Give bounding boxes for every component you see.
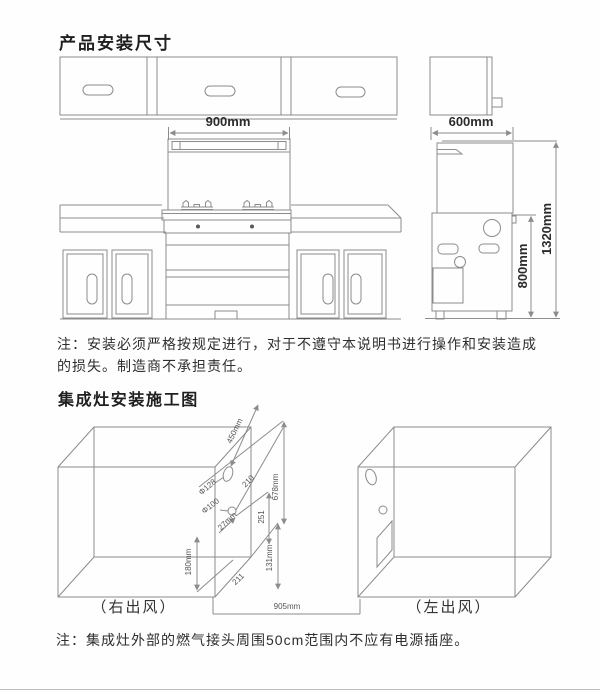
cabinet-handle bbox=[492, 98, 502, 107]
control-knob bbox=[250, 225, 254, 229]
cabinet-handle bbox=[87, 274, 97, 304]
construction-dimension-lines bbox=[197, 405, 360, 614]
opening-width-label: 905mm bbox=[274, 602, 301, 611]
gas-hole bbox=[379, 506, 387, 514]
cabinet-handle bbox=[83, 85, 113, 95]
page-bottom-divider bbox=[0, 689, 600, 690]
gas-burner bbox=[181, 201, 213, 210]
cabinet-handle bbox=[205, 86, 235, 96]
cabinet-handle bbox=[351, 274, 361, 304]
cabinet-handle bbox=[323, 274, 333, 304]
cabinet-depth-label: 600mm bbox=[449, 114, 494, 129]
right-outlet-caption: （右出风） bbox=[91, 599, 176, 616]
dimension-labels: 900mm 600mm 1320mm 800mm bbox=[206, 114, 554, 288]
leg bbox=[436, 311, 444, 319]
control-knob bbox=[196, 225, 200, 229]
outlet-cutout bbox=[377, 521, 392, 567]
note-socket: 注：集成灶外部的燃气接头周围50cm范围内不应有电源插座。 bbox=[56, 629, 576, 651]
dim-211-label: 211 bbox=[231, 571, 247, 587]
product-dimensions-drawing: 900mm 600mm 1320mm 800mm bbox=[0, 50, 600, 325]
gas-dia-label: Φ100 bbox=[200, 496, 222, 516]
dim-131-label: 131mm bbox=[265, 544, 274, 571]
fan-outlet bbox=[484, 220, 501, 237]
counter-height-label: 800mm bbox=[515, 244, 530, 289]
dim-180-label: 180mm bbox=[184, 548, 193, 575]
gas-burner bbox=[242, 201, 274, 210]
construction-labels: 450mm Φ128 210 678mm Φ100 27mm 251 180mm… bbox=[91, 417, 491, 616]
right-outlet-box bbox=[58, 427, 251, 597]
panel-height-label: 678mm bbox=[271, 473, 280, 500]
stove-width-label: 900mm bbox=[206, 114, 251, 129]
left-outlet-box bbox=[358, 427, 551, 597]
kitchen-side-view bbox=[430, 57, 516, 319]
dim-210-label: 210 bbox=[240, 473, 256, 489]
note-installation: 注：安装必须严格按规定进行，对于不遵守本说明书进行操作和安装造成的损失。制造商不… bbox=[57, 333, 545, 377]
left-outlet-caption: （左出风） bbox=[406, 599, 491, 616]
cabinet-handle bbox=[122, 274, 132, 304]
construction-diagram: 450mm Φ128 210 678mm Φ100 27mm 251 180mm… bbox=[0, 400, 600, 640]
kitchen-front-view bbox=[60, 57, 401, 319]
cabinet-handle bbox=[336, 87, 365, 97]
total-height-label: 1320mm bbox=[539, 203, 554, 255]
leg bbox=[497, 311, 506, 319]
gas-inlet bbox=[455, 257, 466, 268]
dimension-lines bbox=[169, 127, 561, 319]
dim-251-label: 251 bbox=[257, 510, 266, 524]
flue-hole bbox=[364, 468, 378, 486]
manual-page: 产品安装尺寸 bbox=[0, 0, 600, 694]
